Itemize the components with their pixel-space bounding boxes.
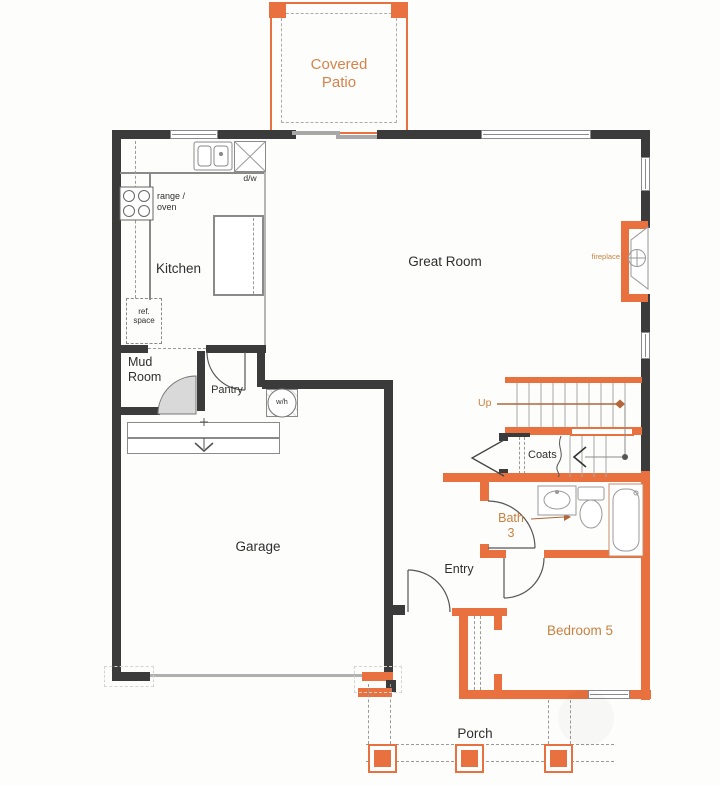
footing-dashed — [104, 666, 154, 687]
closet-rod-dashed — [480, 616, 481, 690]
annotation-wh: w/h — [268, 398, 296, 407]
island-overhang-dashed — [253, 218, 254, 294]
sliding-door-panel — [292, 131, 340, 135]
stair-stringer — [505, 377, 642, 383]
orange-wall-segment — [480, 550, 506, 558]
porch-column-dashed — [368, 684, 369, 744]
stair-treads — [517, 383, 625, 427]
dishwasher — [234, 141, 266, 172]
wall-segment — [218, 130, 296, 139]
porch-post — [368, 744, 397, 773]
fireplace-surround — [621, 294, 648, 302]
wall-segment — [377, 130, 481, 139]
stair-treads-lower — [570, 436, 606, 477]
step — [127, 422, 280, 438]
window — [170, 130, 218, 139]
room-label-great-room: Great Room — [395, 254, 495, 270]
upper-cabinet-dashed — [135, 141, 136, 298]
orange-wall-segment — [443, 473, 650, 482]
island-counter — [213, 215, 264, 296]
bath-vanity — [538, 486, 576, 515]
fireplace-surround — [621, 221, 648, 229]
closet-rod-dashed — [519, 437, 520, 474]
bathtub — [609, 484, 643, 556]
stair-direction-arrows — [497, 400, 628, 478]
room-label-porch: Porch — [430, 726, 520, 742]
wall-segment — [112, 407, 160, 415]
opening-dashed — [148, 348, 206, 349]
porch-column-dashed — [548, 700, 549, 744]
closet-rod-dashed — [474, 616, 475, 690]
wall-segment — [262, 380, 393, 389]
bedroom-5-door — [504, 558, 544, 598]
orange-wall-segment — [630, 690, 651, 699]
room-label-garage: Garage — [218, 539, 298, 555]
kitchen-boundary-line — [264, 172, 266, 345]
orange-wall-segment — [480, 482, 489, 501]
wall-segment — [197, 351, 205, 411]
watermark-circle — [558, 690, 614, 746]
annotation-range-oven: range / oven — [157, 191, 203, 212]
fireplace-surround — [621, 221, 629, 302]
sliding-door-panel — [336, 135, 382, 139]
annotation-up: Up — [478, 397, 491, 409]
wall-segment — [112, 345, 148, 353]
patio-post — [269, 2, 286, 18]
window — [641, 157, 650, 191]
room-label-bath-3: Bath 3 — [493, 511, 529, 541]
garage-door — [150, 674, 362, 677]
orange-wall-segment — [544, 550, 650, 558]
floor-plan: Covered Patio Kitchen Great Room Mud Roo… — [0, 0, 720, 786]
wall-segment — [641, 359, 650, 471]
closet-rod-dashed — [524, 437, 525, 474]
window — [481, 130, 591, 139]
annotation-dw: d/w — [230, 173, 270, 183]
patio-post — [391, 2, 408, 18]
room-label-mud-room: Mud Room — [128, 355, 180, 385]
room-label-kitchen: Kitchen — [156, 261, 201, 277]
porch-edge-dashed — [366, 761, 614, 762]
porch-post — [455, 744, 484, 773]
room-label-bedroom-5: Bedroom 5 — [520, 623, 640, 639]
porch-post — [544, 744, 573, 773]
wall-segment — [641, 130, 650, 157]
window — [641, 332, 650, 359]
step — [127, 438, 280, 454]
wall-segment — [112, 130, 121, 681]
toilet — [578, 487, 604, 528]
room-label-pantry: Pantry — [203, 384, 251, 397]
orange-wall-segment — [494, 616, 502, 630]
counter-edge — [149, 172, 151, 300]
wall-segment — [393, 605, 405, 615]
footing-dashed — [354, 666, 402, 693]
wall-segment — [384, 389, 393, 672]
room-label-covered-patio: Covered Patio — [294, 56, 384, 91]
bath-3-leader — [531, 513, 571, 521]
porch-column-dashed — [390, 684, 391, 744]
orange-wall-segment — [459, 608, 468, 694]
orange-wall-segment — [641, 471, 650, 700]
room-label-coats: Coats — [528, 449, 557, 462]
stair-landing — [570, 427, 634, 436]
room-label-entry: Entry — [433, 562, 485, 577]
fireplace-icon — [629, 227, 649, 289]
kitchen-sink — [194, 142, 232, 170]
wall-segment — [499, 433, 508, 441]
annotation-fireplace: fireplace — [582, 253, 620, 262]
annotation-ref-space: ref. space — [127, 307, 161, 326]
